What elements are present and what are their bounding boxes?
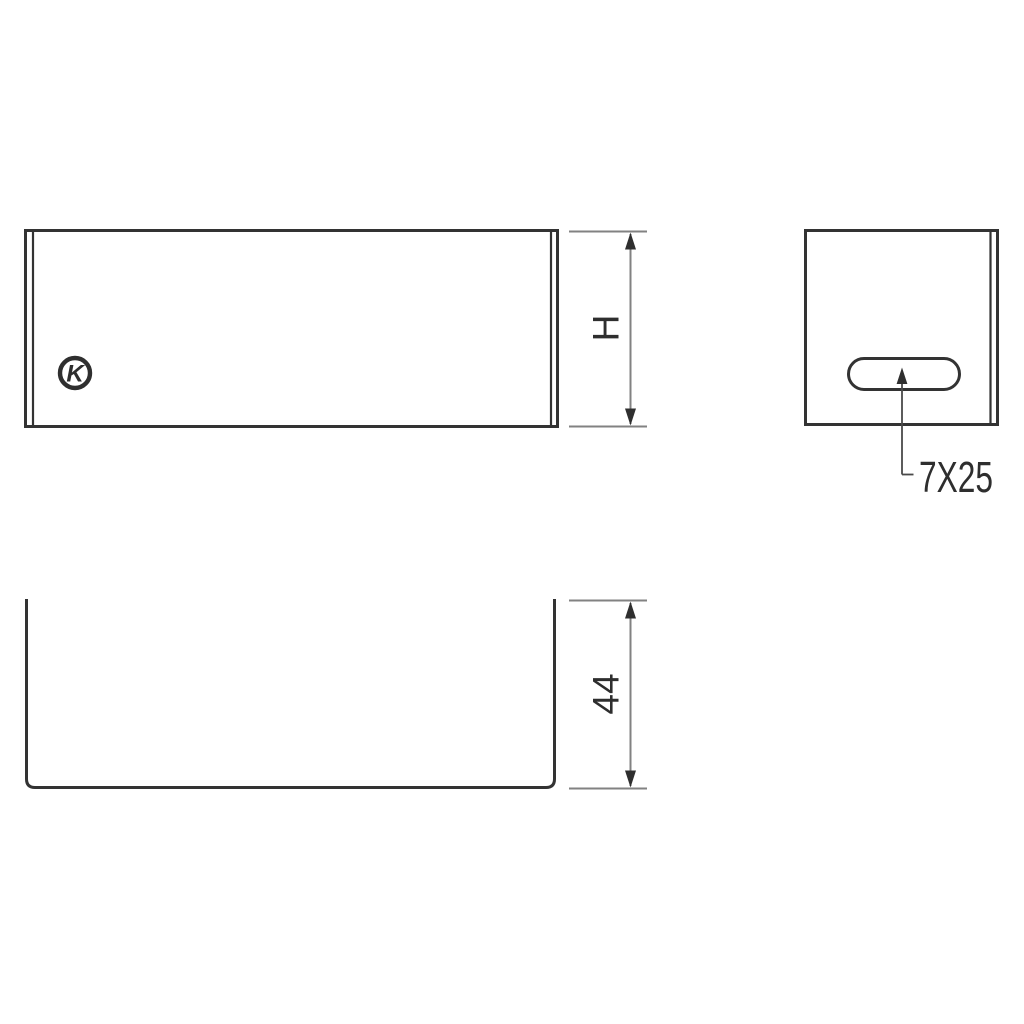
channel-profile-view [27, 599, 555, 788]
front-view: K [26, 231, 558, 427]
height-arrow-up-icon [625, 233, 636, 250]
channel-profile-outline [27, 599, 555, 788]
depth-arrow-up-icon [625, 602, 636, 619]
front-view-outline [26, 231, 558, 427]
height-dimension: H [569, 232, 647, 427]
depth-dimension-label: 44 [586, 673, 627, 714]
height-dimension-label: H [586, 315, 627, 342]
slot-dimension-label: 7X25 [919, 453, 993, 502]
depth-dimension: 44 [569, 601, 647, 789]
brand-logo-letter: K [66, 361, 85, 388]
depth-arrow-down-icon [625, 771, 636, 788]
drawing-canvas: K H 7X25 [0, 0, 1024, 1024]
side-view: 7X25 [806, 231, 998, 503]
height-arrow-down-icon [625, 409, 636, 426]
technical-drawing: K H 7X25 [0, 0, 1024, 1024]
